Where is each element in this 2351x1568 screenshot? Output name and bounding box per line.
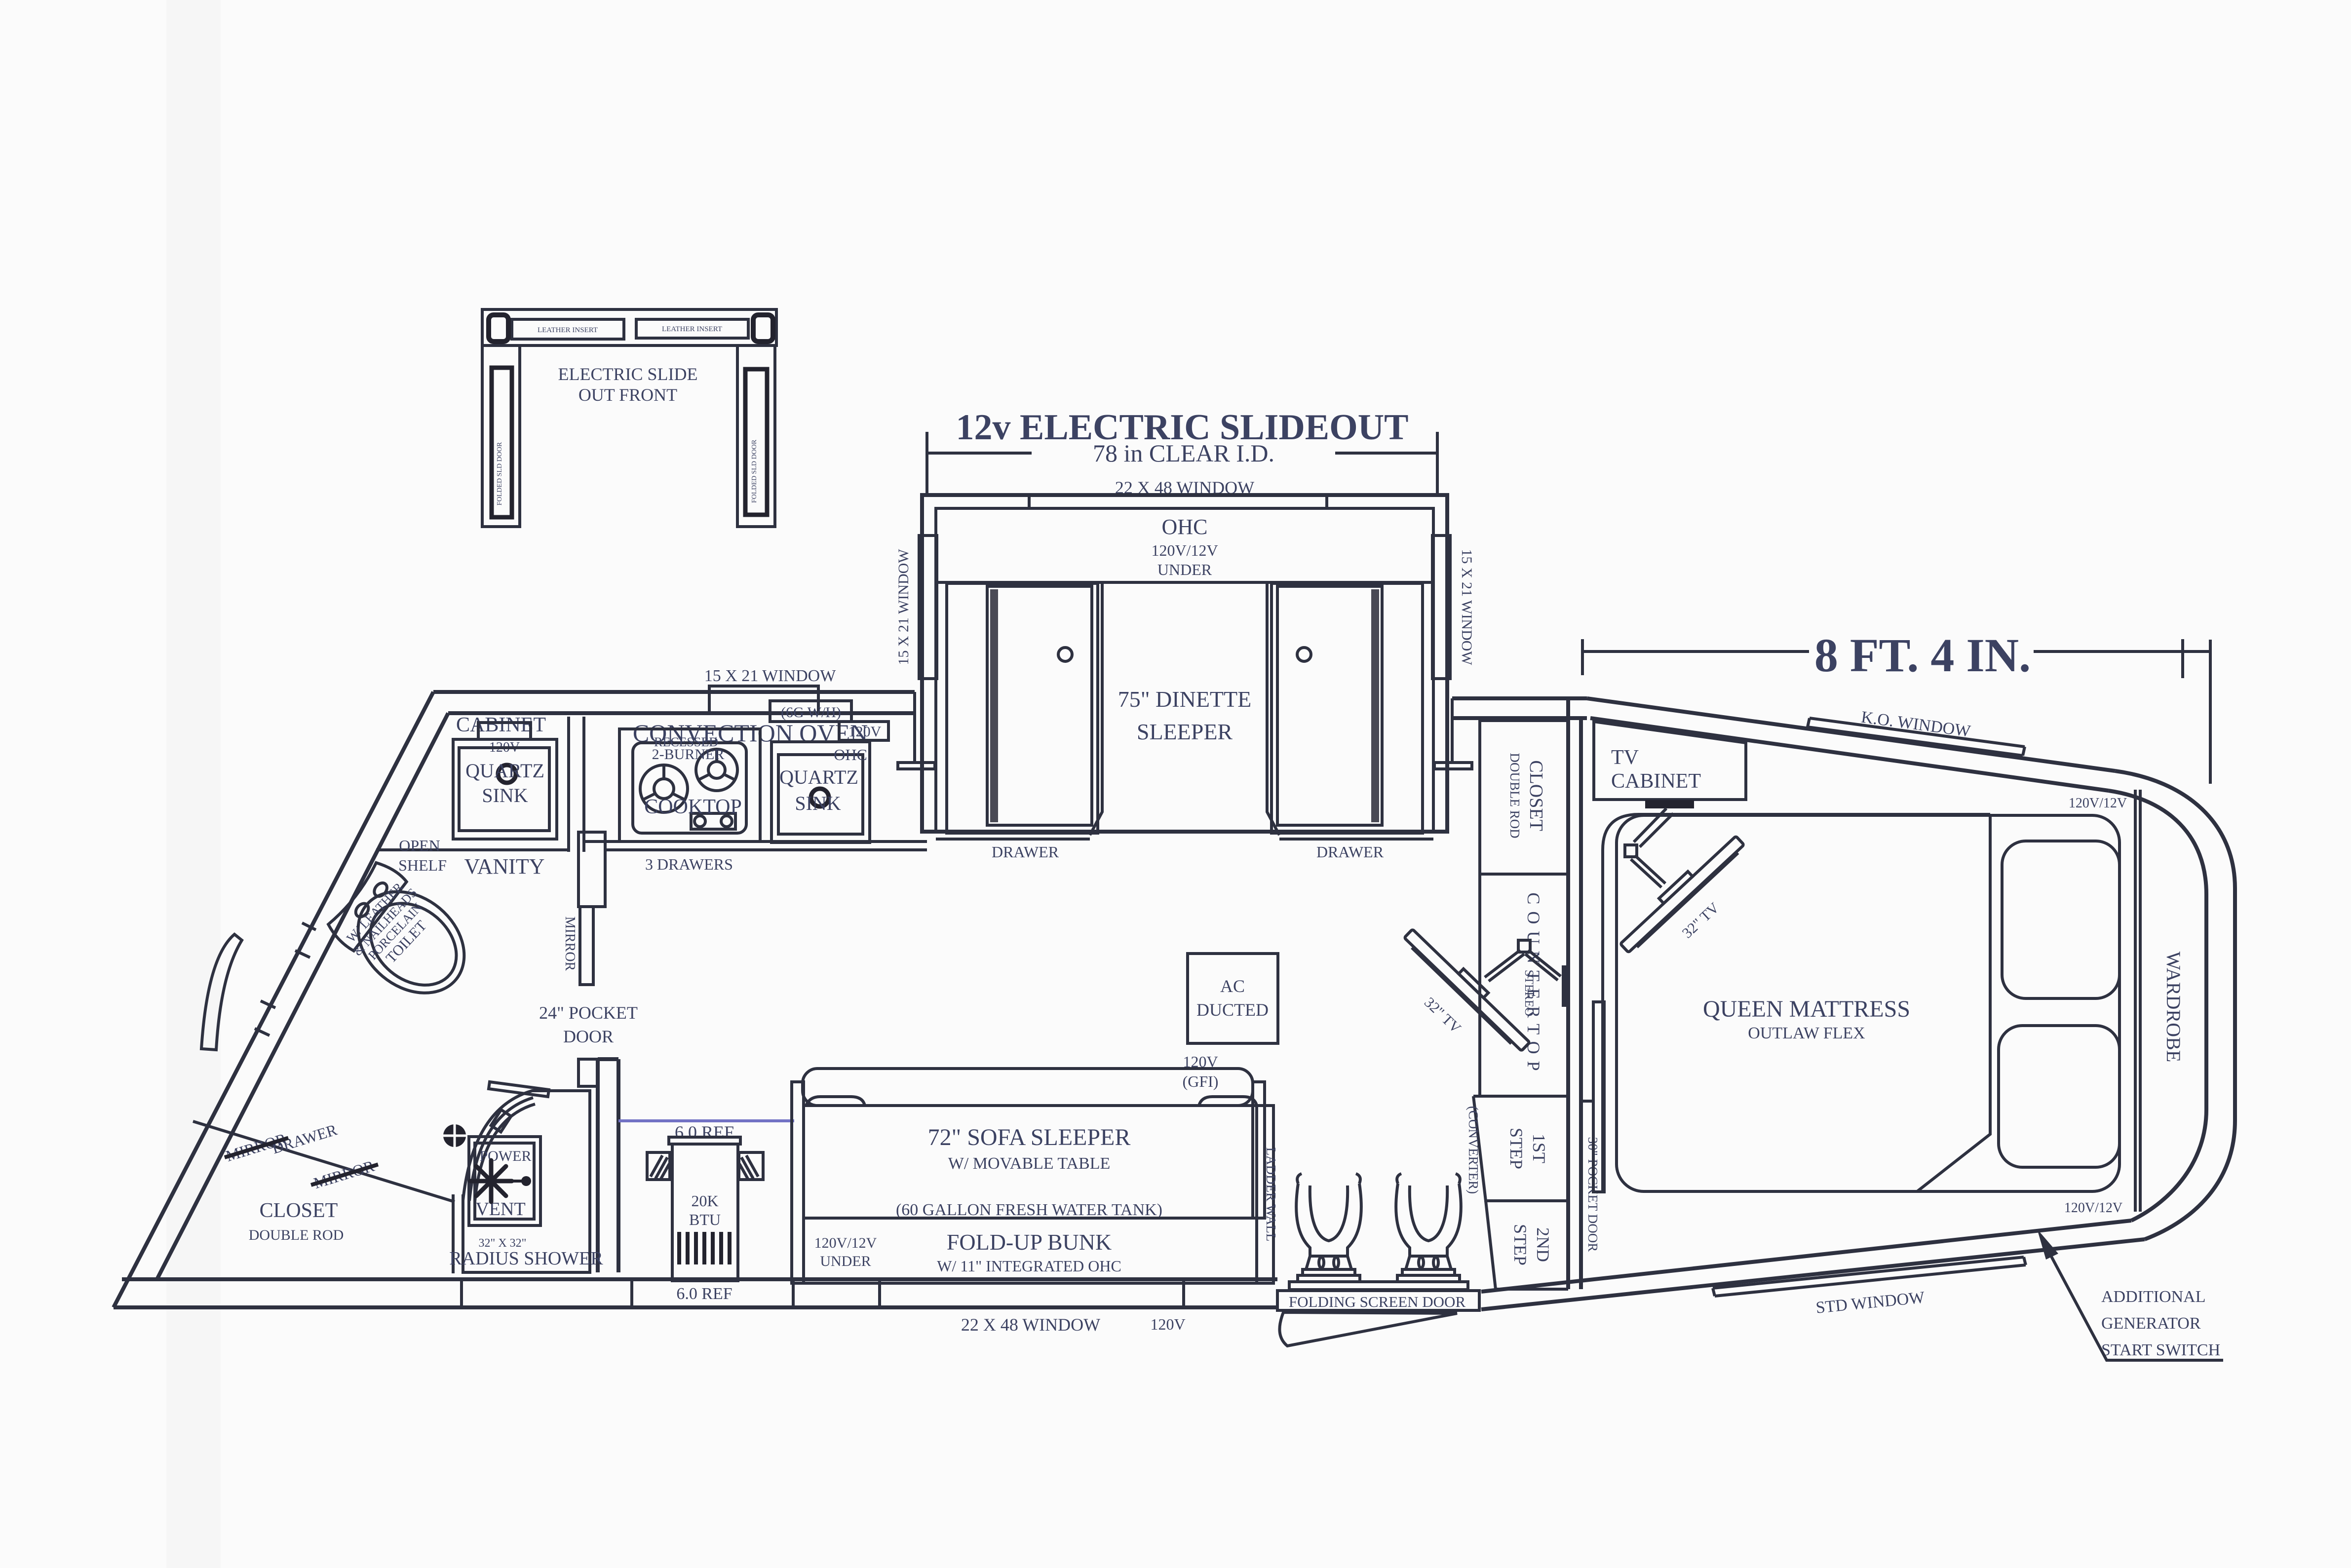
svg-text:78 in CLEAR I.D.: 78 in CLEAR I.D. <box>1093 439 1274 467</box>
svg-text:START SWITCH: START SWITCH <box>2101 1341 2220 1359</box>
svg-text:SHELF: SHELF <box>398 856 447 874</box>
svg-text:15 X 21 WINDOW: 15 X 21 WINDOW <box>895 549 912 665</box>
svg-text:VANITY: VANITY <box>464 854 545 879</box>
svg-text:8 FT. 4 IN.: 8 FT. 4 IN. <box>1814 629 2031 682</box>
svg-text:CLOSET: CLOSET <box>260 1199 338 1222</box>
svg-text:OHC: OHC <box>1162 515 1208 539</box>
svg-text:OHC: OHC <box>834 746 867 764</box>
svg-text:LEATHER INSERT: LEATHER INSERT <box>538 326 598 334</box>
svg-text:(GFI): (GFI) <box>1183 1072 1219 1090</box>
svg-text:DOUBLE ROD: DOUBLE ROD <box>1507 753 1522 838</box>
svg-text:120V/12V: 120V/12V <box>2064 1200 2122 1216</box>
svg-text:DOUBLE ROD: DOUBLE ROD <box>249 1227 344 1243</box>
svg-text:24" POCKET: 24" POCKET <box>539 1003 638 1023</box>
svg-text:OUTLAW FLEX: OUTLAW FLEX <box>1748 1024 1865 1042</box>
svg-text:BTU: BTU <box>689 1211 721 1228</box>
svg-text:FOLD-UP BUNK: FOLD-UP BUNK <box>947 1229 1112 1255</box>
svg-text:120V/12V: 120V/12V <box>1151 541 1218 559</box>
svg-text:2ND: 2ND <box>1533 1227 1553 1262</box>
svg-text:UNDER: UNDER <box>820 1253 871 1269</box>
svg-text:AC: AC <box>1220 976 1245 996</box>
svg-text:(60 GALLON FRESH WATER TANK): (60 GALLON FRESH WATER TANK) <box>896 1201 1162 1219</box>
svg-text:QUARTZ: QUARTZ <box>779 766 858 788</box>
svg-text:SINK: SINK <box>482 784 528 806</box>
svg-text:SINK: SINK <box>795 792 841 814</box>
svg-text:CLOSET: CLOSET <box>1526 760 1546 831</box>
svg-text:ADDITIONAL: ADDITIONAL <box>2101 1288 2206 1306</box>
svg-text:DRAWER: DRAWER <box>992 843 1059 861</box>
svg-text:POWER: POWER <box>480 1148 532 1164</box>
svg-text:STEP: STEP <box>1510 1224 1530 1265</box>
svg-text:120V: 120V <box>848 724 882 740</box>
svg-text:DOOR: DOOR <box>563 1027 614 1046</box>
svg-text:75" DINETTE: 75" DINETTE <box>1118 687 1251 712</box>
svg-text:20K: 20K <box>691 1192 718 1210</box>
svg-text:OUT FRONT: OUT FRONT <box>578 385 677 405</box>
svg-text:3 DRAWERS: 3 DRAWERS <box>645 855 733 873</box>
svg-text:STEREO: STEREO <box>1522 970 1536 1016</box>
svg-text:STEP: STEP <box>1506 1128 1526 1169</box>
svg-text:DRAWER: DRAWER <box>1316 843 1384 861</box>
svg-text:DUCTED: DUCTED <box>1196 1000 1269 1020</box>
svg-text:FOLDING SCREEN DOOR: FOLDING SCREEN DOOR <box>1289 1293 1466 1310</box>
svg-text:QUARTZ: QUARTZ <box>465 760 544 782</box>
svg-text:120V/12V: 120V/12V <box>2069 796 2127 811</box>
svg-text:ELECTRIC SLIDE: ELECTRIC SLIDE <box>558 364 698 384</box>
svg-text:15 X 21 WINDOW: 15 X 21 WINDOW <box>1459 549 1475 665</box>
svg-text:6.0 REF: 6.0 REF <box>675 1122 734 1142</box>
svg-text:6.0 REF: 6.0 REF <box>676 1285 732 1303</box>
svg-text:GENERATOR: GENERATOR <box>2101 1314 2201 1333</box>
svg-text:W/ MOVABLE TABLE: W/ MOVABLE TABLE <box>948 1154 1110 1173</box>
svg-text:22 X 48 WINDOW: 22 X 48 WINDOW <box>961 1315 1100 1335</box>
svg-text:FOLDED SLD DOOR: FOLDED SLD DOOR <box>751 439 758 503</box>
svg-text:CABINET: CABINET <box>1611 770 1701 793</box>
svg-text:CABINET: CABINET <box>456 714 546 736</box>
svg-text:72" SOFA SLEEPER: 72" SOFA SLEEPER <box>928 1124 1131 1150</box>
svg-text:2-BURNER: 2-BURNER <box>652 746 725 763</box>
svg-text:LEATHER INSERT: LEATHER INSERT <box>662 325 722 333</box>
svg-text:WARDROBE: WARDROBE <box>2162 952 2185 1062</box>
svg-text:RADIUS SHOWER: RADIUS SHOWER <box>449 1248 603 1269</box>
svg-text:15 X 21 WINDOW: 15 X 21 WINDOW <box>704 667 837 685</box>
svg-text:FOLDED SLD DOOR: FOLDED SLD DOOR <box>496 442 503 505</box>
svg-text:QUEEN MATTRESS: QUEEN MATTRESS <box>1703 996 1910 1022</box>
svg-text:(CONVERTER): (CONVERTER) <box>1466 1106 1481 1194</box>
svg-text:W/ 11" INTEGRATED OHC: W/ 11" INTEGRATED OHC <box>937 1257 1121 1275</box>
svg-text:120V: 120V <box>1183 1053 1218 1071</box>
svg-text:SLEEPER: SLEEPER <box>1137 719 1233 744</box>
svg-text:UNDER: UNDER <box>1157 561 1212 578</box>
svg-text:120V/12V: 120V/12V <box>814 1235 877 1251</box>
svg-text:1ST: 1ST <box>1529 1134 1549 1163</box>
svg-text:TV: TV <box>1611 746 1639 769</box>
svg-text:LADDER WALL: LADDER WALL <box>1264 1147 1278 1242</box>
svg-text:OPEN: OPEN <box>399 837 440 854</box>
svg-text:(6G W/H): (6G W/H) <box>781 704 841 721</box>
svg-text:MIRROR: MIRROR <box>562 917 578 971</box>
svg-text:VENT: VENT <box>475 1199 525 1220</box>
svg-text:COOKTOP: COOKTOP <box>644 796 742 818</box>
svg-text:120V: 120V <box>1150 1315 1185 1333</box>
